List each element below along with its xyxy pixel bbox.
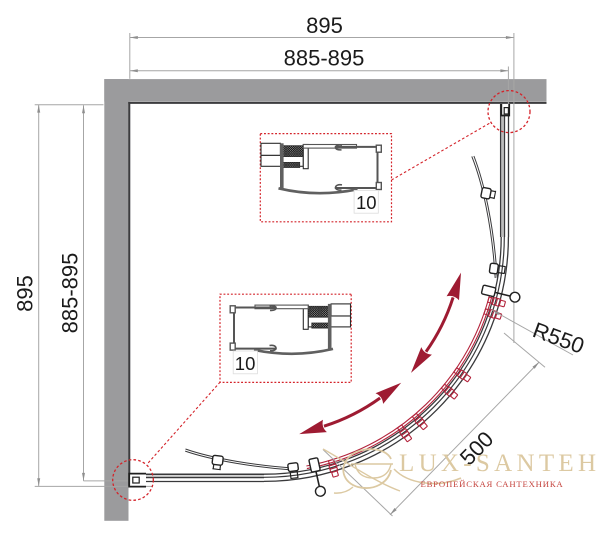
svg-text:885-895: 885-895 bbox=[284, 46, 365, 71]
svg-text:895: 895 bbox=[13, 275, 38, 312]
svg-text:10: 10 bbox=[235, 353, 256, 374]
svg-text:ЕВРОПЕЙСКАЯ САНТЕХНИКА: ЕВРОПЕЙСКАЯ САНТЕХНИКА bbox=[420, 479, 563, 489]
svg-text:885-895: 885-895 bbox=[58, 253, 83, 334]
svg-text:10: 10 bbox=[356, 192, 377, 213]
svg-text:895: 895 bbox=[306, 13, 343, 38]
svg-text:LUX-SANTEH: LUX-SANTEH bbox=[399, 450, 600, 477]
svg-text:R550: R550 bbox=[530, 317, 588, 358]
